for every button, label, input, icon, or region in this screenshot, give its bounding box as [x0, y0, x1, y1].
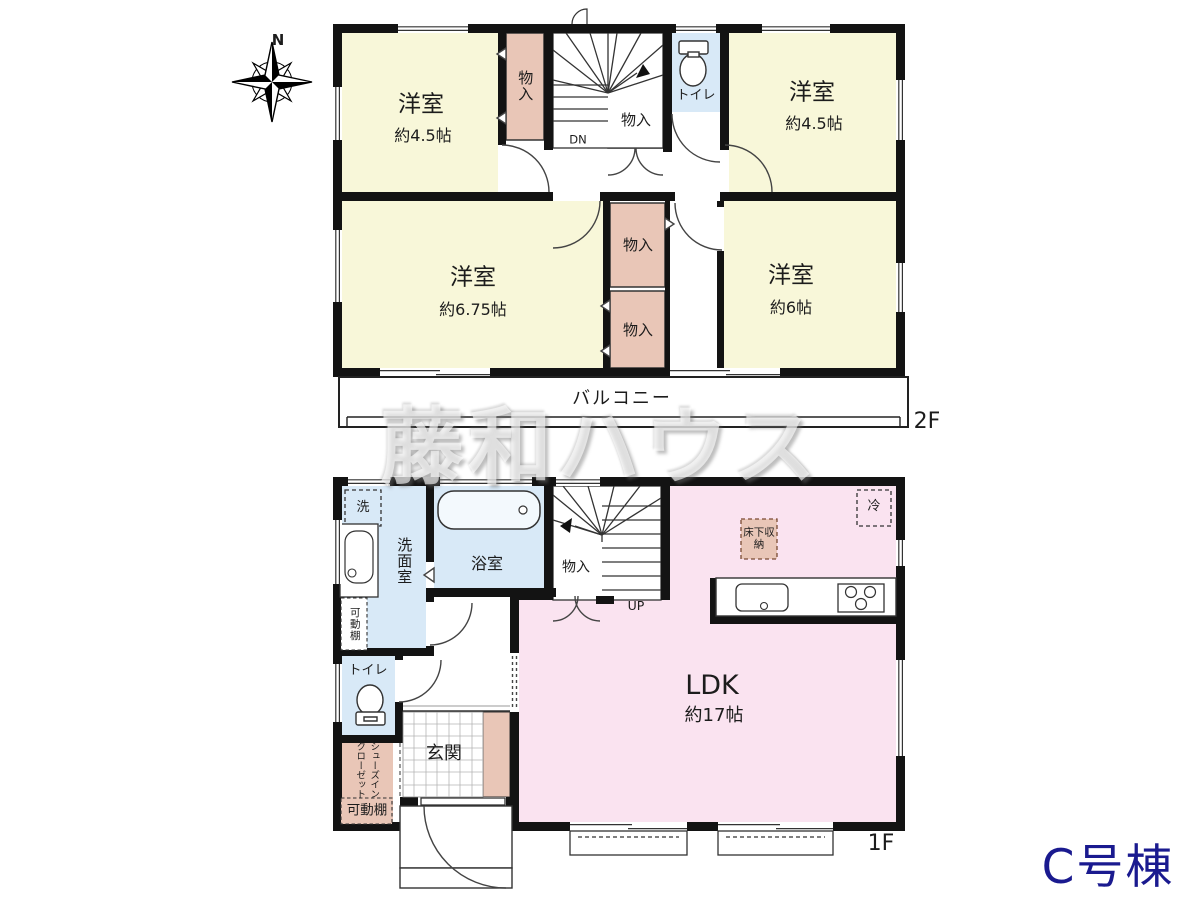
shoe-closet-label-line1: シューズイン: [368, 742, 378, 799]
vanity-sink-icon: [340, 524, 378, 597]
closet-2f-1-label: 物入: [517, 70, 534, 102]
bedroom-se-size: 約6帖: [770, 299, 812, 317]
stairs-2f: [553, 33, 663, 148]
entrance-porch: [400, 798, 512, 888]
toilet-1f-label: トイレ: [348, 664, 387, 678]
entrance-cabinet-fill: [483, 712, 510, 797]
compass-icon: [232, 42, 312, 122]
watermark-text: 藤和ハウス: [380, 381, 820, 502]
toilet-icon-2f: [679, 41, 708, 86]
stairs-up-label: UP: [628, 599, 645, 613]
bedroom-ne-size: 約4.5帖: [785, 115, 842, 133]
ldk-size: 約17帖: [685, 706, 744, 726]
bedroom-sw-name: 洋室: [450, 265, 496, 290]
front-door-leaf: [421, 798, 505, 805]
room-bedroom-ne-fill: [729, 33, 896, 192]
terrace-steps: [570, 831, 833, 855]
bedroom-nw-name: 洋室: [398, 92, 444, 117]
bathroom-label: 浴室: [471, 555, 503, 573]
toilet-2f-label: トイレ: [676, 89, 715, 103]
closet-1f-label: 物入: [562, 560, 590, 575]
washroom-label: 洗面室: [396, 537, 413, 585]
floor1-label: 1F: [868, 832, 895, 856]
kitchen-counter: [716, 578, 896, 616]
closet-2f-3-label: 物入: [623, 237, 653, 254]
bedroom-ne-name: 洋室: [789, 80, 835, 105]
shoe-closet-label-line2: クローゼット: [354, 742, 364, 799]
stairs-dn-label: DN: [569, 134, 586, 147]
floorplan-page: N 洋室 約4.5帖 洋室 約4.5帖 洋室 約6.75帖 洋室 約6帖 物入 …: [0, 0, 1200, 900]
bedroom-sw-size: 約6.75帖: [439, 301, 507, 319]
closet-2f-4-label: 物入: [623, 322, 653, 339]
building-name-label: C号棟: [1042, 842, 1175, 894]
stair-window-arc: [572, 9, 587, 24]
toilet-icon-1f: [356, 685, 385, 725]
stairs-1f: [553, 486, 661, 600]
bedroom-se-name: 洋室: [768, 263, 814, 288]
entrance-label: 玄関: [426, 744, 462, 764]
ldk-name: LDK: [685, 671, 739, 701]
closet-2f-2-label: 物入: [621, 112, 651, 129]
underfloor-storage-label: 床下収納: [739, 527, 779, 550]
movable-shelf-entrance-label: 可動棚: [347, 804, 388, 819]
compass-north-label: N: [272, 32, 285, 49]
floor2-label: 2F: [914, 410, 941, 434]
bedroom-nw-size: 約4.5帖: [394, 127, 451, 145]
refrigerator-label: 冷: [867, 500, 880, 514]
movable-shelf-washroom-label: 可動棚: [348, 607, 360, 642]
washer-label: 洗: [356, 501, 369, 515]
